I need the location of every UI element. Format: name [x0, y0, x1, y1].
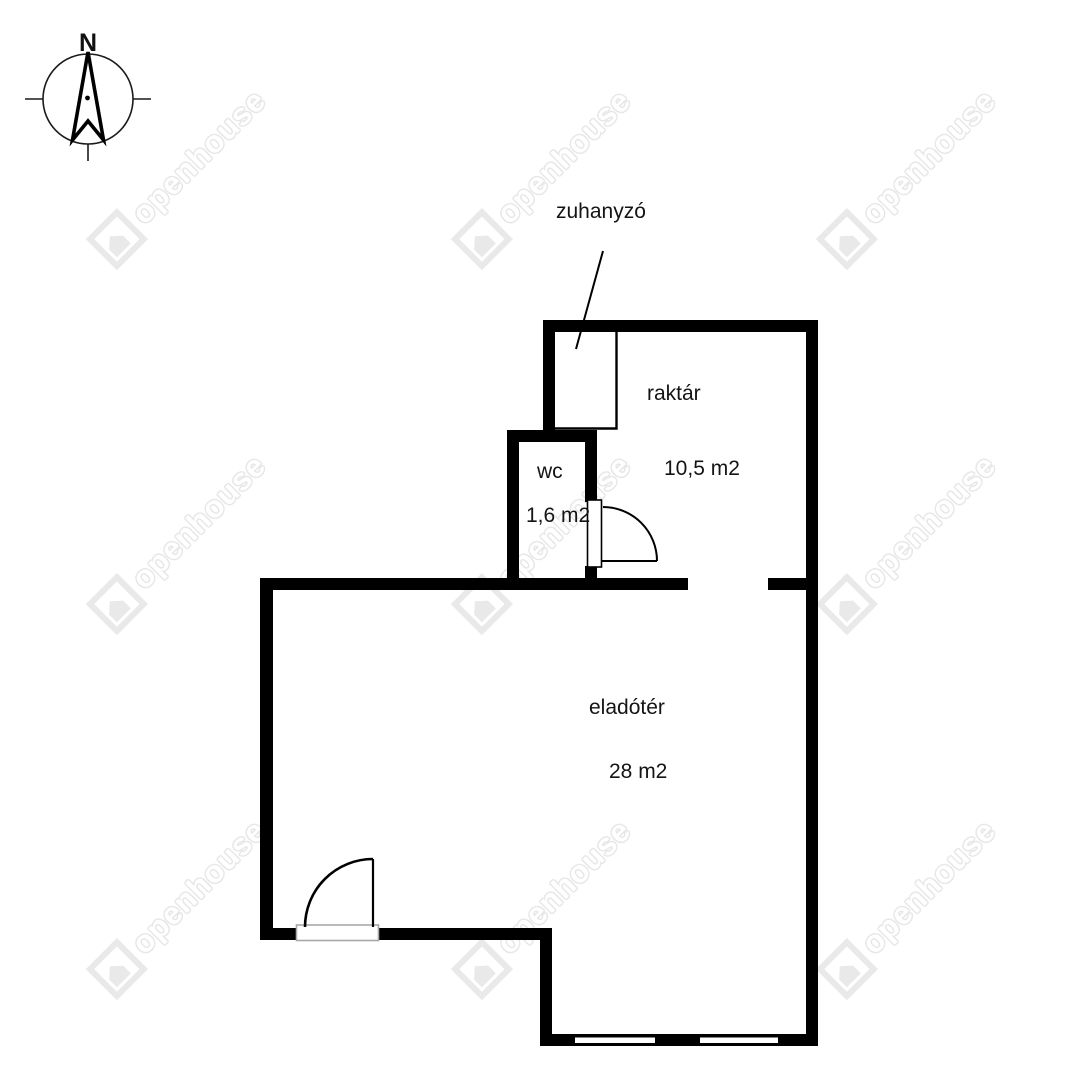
- entrance-door-threshold: [297, 925, 379, 941]
- area-label-wc: 1,6 m2: [526, 504, 590, 527]
- area-label-raktar: 10,5 m2: [664, 457, 740, 480]
- room-label-eladoter: eladótér: [589, 696, 665, 719]
- entrance-door-swing-arc: [305, 859, 373, 927]
- window-slot-2: [700, 1038, 778, 1044]
- compass-north-label: N: [73, 29, 103, 58]
- compass-center-dot: [85, 96, 90, 101]
- room-label-zuhanyzo: zuhanyzó: [556, 200, 646, 223]
- room-label-wc: wc: [537, 460, 563, 483]
- plan-linework: [0, 0, 1089, 1080]
- floor-plan-canvas: openhouse openhouse openhouse openhouse …: [0, 0, 1089, 1080]
- shower-partition-line: [555, 332, 617, 429]
- room-label-raktar: raktár: [647, 382, 701, 405]
- compass-rose: [25, 52, 151, 161]
- area-label-eladoter: 28 m2: [609, 760, 667, 783]
- label-leader-line: [576, 251, 603, 349]
- wc-door-swing-arc: [603, 507, 657, 561]
- window-slot-1: [575, 1038, 655, 1044]
